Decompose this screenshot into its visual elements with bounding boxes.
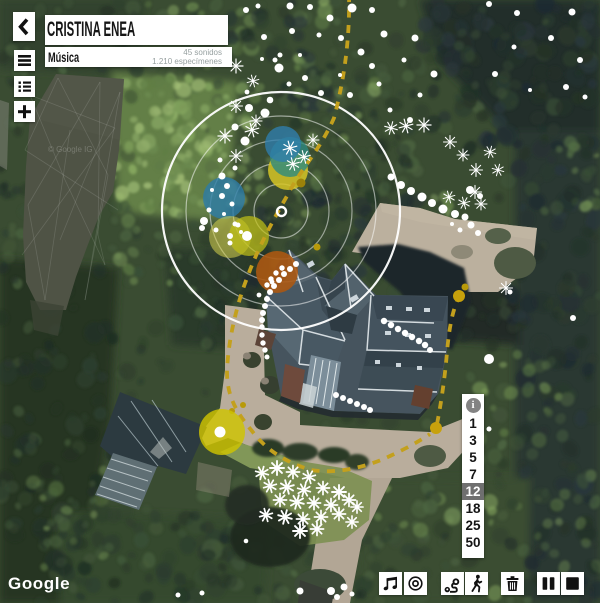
svg-text:© Google IG: © Google IG — [48, 145, 93, 154]
